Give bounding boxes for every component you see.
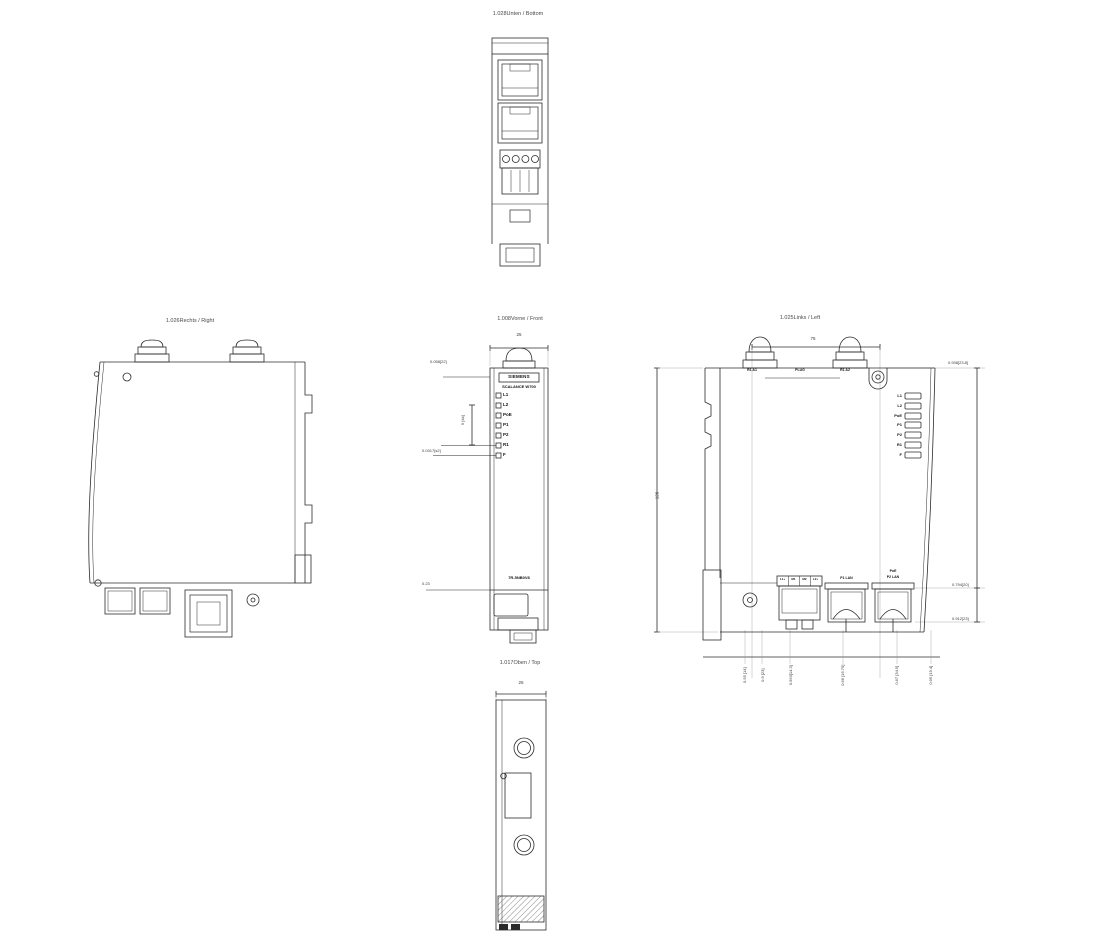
left-view-drawing bbox=[645, 330, 995, 692]
front-led-label-f: F bbox=[503, 452, 506, 458]
din-foot bbox=[703, 570, 721, 640]
left-led-label-l2: L2 bbox=[878, 403, 902, 409]
left-dim-right-top: 0.938[23.8] bbox=[948, 361, 968, 365]
drawing-sheet: 1.028Unten / Bottom bbox=[0, 0, 1098, 943]
front-led-label-l1: L1 bbox=[503, 392, 508, 398]
top-view-drawing bbox=[478, 670, 578, 940]
din-rail-profile bbox=[305, 362, 312, 583]
bottom-port-1 bbox=[105, 588, 135, 614]
antenna-connector-2 bbox=[514, 835, 534, 855]
power-terminal bbox=[777, 576, 822, 629]
left-bottom-dim-5: 0.67 [34.5] bbox=[895, 653, 899, 697]
left-bottom-dim-4: 0.66 [16.75] bbox=[841, 653, 845, 697]
left-led-label-l1: L1 bbox=[878, 393, 902, 399]
rj45-jack-2 bbox=[498, 103, 542, 143]
terminal-cell-l2p: L2+ bbox=[810, 578, 821, 581]
front-led-label-l2: L2 bbox=[503, 402, 508, 408]
antenna-connector-1 bbox=[514, 738, 534, 758]
screw-hole bbox=[247, 594, 259, 606]
left-bottom-dim-1: 0.55 [14] bbox=[743, 653, 747, 697]
left-dim-right-bottom: 0.912[23] bbox=[952, 617, 969, 621]
bottom-connector-large bbox=[185, 590, 232, 637]
front-led-label-r1: R1 bbox=[503, 442, 509, 448]
hatched-section bbox=[498, 896, 544, 922]
left-bottom-dim-2: 0.9 [23] bbox=[761, 653, 765, 697]
left-led-label-p1: P1 bbox=[878, 422, 902, 428]
left-dim-right-mid: 0.794[20] bbox=[952, 583, 969, 587]
antenna2-label: R1 A2 bbox=[831, 369, 859, 373]
antenna1-label: R1 A1 bbox=[738, 369, 766, 373]
product-name: SCALANCE W700 bbox=[489, 385, 549, 389]
left-led-label-poe: PoE bbox=[878, 413, 902, 419]
mounting-hole bbox=[123, 373, 131, 381]
plug-label: PLUG bbox=[786, 369, 814, 373]
antenna-dome-1 bbox=[135, 340, 169, 362]
terminal-cell-l1p: L1+ bbox=[777, 578, 788, 581]
mounting-hole-top-right bbox=[872, 371, 884, 383]
antenna-dome-a2 bbox=[833, 337, 867, 368]
antenna-dome-a1 bbox=[743, 337, 777, 368]
top-view-title: 1.017Oben / Top bbox=[440, 660, 600, 666]
antenna-dome-front bbox=[503, 348, 535, 368]
right-view-title: 1.026Rechts / Right bbox=[110, 318, 270, 324]
led-squares bbox=[496, 393, 501, 458]
port-p1-lan bbox=[825, 583, 868, 632]
front-view-title: 1.008Vorne / Front bbox=[440, 316, 600, 322]
terminal-cell-m1: M1 bbox=[788, 578, 799, 581]
left-led-label-f: F bbox=[878, 452, 902, 458]
left-bottom-dim-6: 0.95 [19.4] bbox=[929, 653, 933, 697]
plug-slot-cutout bbox=[505, 773, 531, 818]
port1-label: P1 LAN bbox=[825, 577, 868, 581]
left-view-title: 1.025Links / Left bbox=[720, 315, 880, 321]
product-code: 7R-5NB0V8 bbox=[489, 576, 549, 580]
left-led-label-r1: R1 bbox=[878, 442, 902, 448]
din-clip-bottom bbox=[500, 244, 540, 266]
front-led-label-p2: P2 bbox=[503, 432, 509, 438]
front-view-drawing bbox=[425, 328, 565, 663]
bottom-port-2 bbox=[140, 588, 170, 614]
front-led-label-poe: PoE bbox=[503, 412, 512, 418]
brand-label: SIEMENS bbox=[499, 375, 539, 380]
mounting-hole-bottom-left bbox=[743, 593, 757, 607]
right-view-drawing bbox=[80, 335, 325, 650]
led-row-boxes bbox=[905, 393, 921, 458]
front-led-label-p1: P1 bbox=[503, 422, 509, 428]
front-bottom-clip bbox=[494, 594, 538, 643]
rj45-jack-1 bbox=[498, 60, 542, 100]
din-clip-top bbox=[492, 38, 548, 54]
antenna-dome-2 bbox=[230, 340, 264, 362]
port2-label-poe: PoE bbox=[872, 570, 914, 574]
din-rail-profile-left bbox=[705, 368, 711, 570]
bottom-view-drawing bbox=[486, 34, 556, 274]
bottom-view-title: 1.028Unten / Bottom bbox=[443, 11, 593, 17]
left-bottom-dim-3: 0.563[14.3] bbox=[789, 653, 793, 697]
terminal-cell-m2: M2 bbox=[799, 578, 810, 581]
left-led-label-p2: P2 bbox=[878, 432, 902, 438]
power-terminal-block bbox=[500, 150, 540, 194]
port-p2-lan-poe bbox=[872, 583, 914, 632]
port2-label-p2lan: P2 LAN bbox=[872, 576, 914, 580]
